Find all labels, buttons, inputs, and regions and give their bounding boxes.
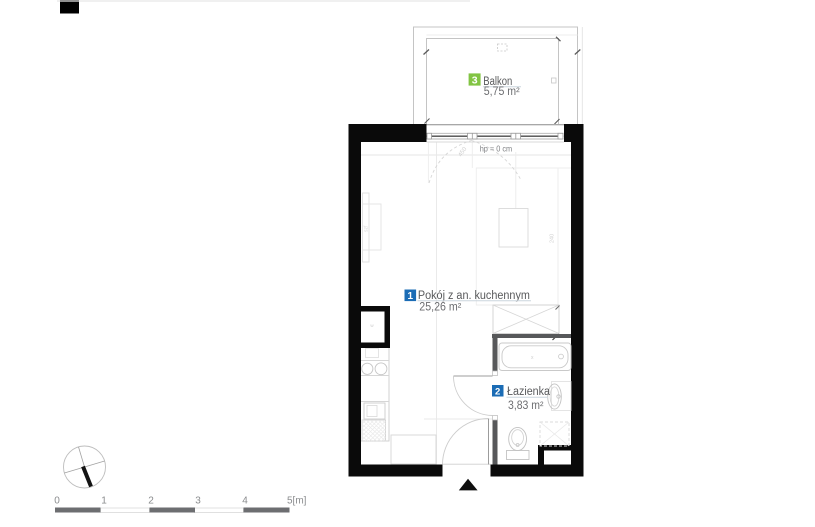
svg-text:szf: szf bbox=[364, 225, 370, 232]
svg-text:2: 2 bbox=[148, 496, 154, 507]
svg-text:4: 4 bbox=[242, 496, 248, 507]
svg-text:25,26 m²: 25,26 m² bbox=[419, 301, 461, 313]
svg-text:5[m]: 5[m] bbox=[287, 496, 307, 507]
svg-text:1: 1 bbox=[101, 496, 107, 507]
svg-text:240: 240 bbox=[550, 234, 556, 243]
svg-text:hp = 0 cm: hp = 0 cm bbox=[480, 144, 513, 153]
svg-text:3,83 m²: 3,83 m² bbox=[508, 400, 544, 412]
svg-text:2: 2 bbox=[495, 386, 500, 397]
svg-text:1: 1 bbox=[408, 291, 414, 302]
svg-text:Łazienka: Łazienka bbox=[507, 386, 551, 398]
svg-text:0: 0 bbox=[54, 496, 60, 507]
svg-text:3: 3 bbox=[472, 74, 478, 86]
svg-text:3: 3 bbox=[195, 496, 201, 507]
svg-text:5,75 m²: 5,75 m² bbox=[484, 86, 520, 98]
